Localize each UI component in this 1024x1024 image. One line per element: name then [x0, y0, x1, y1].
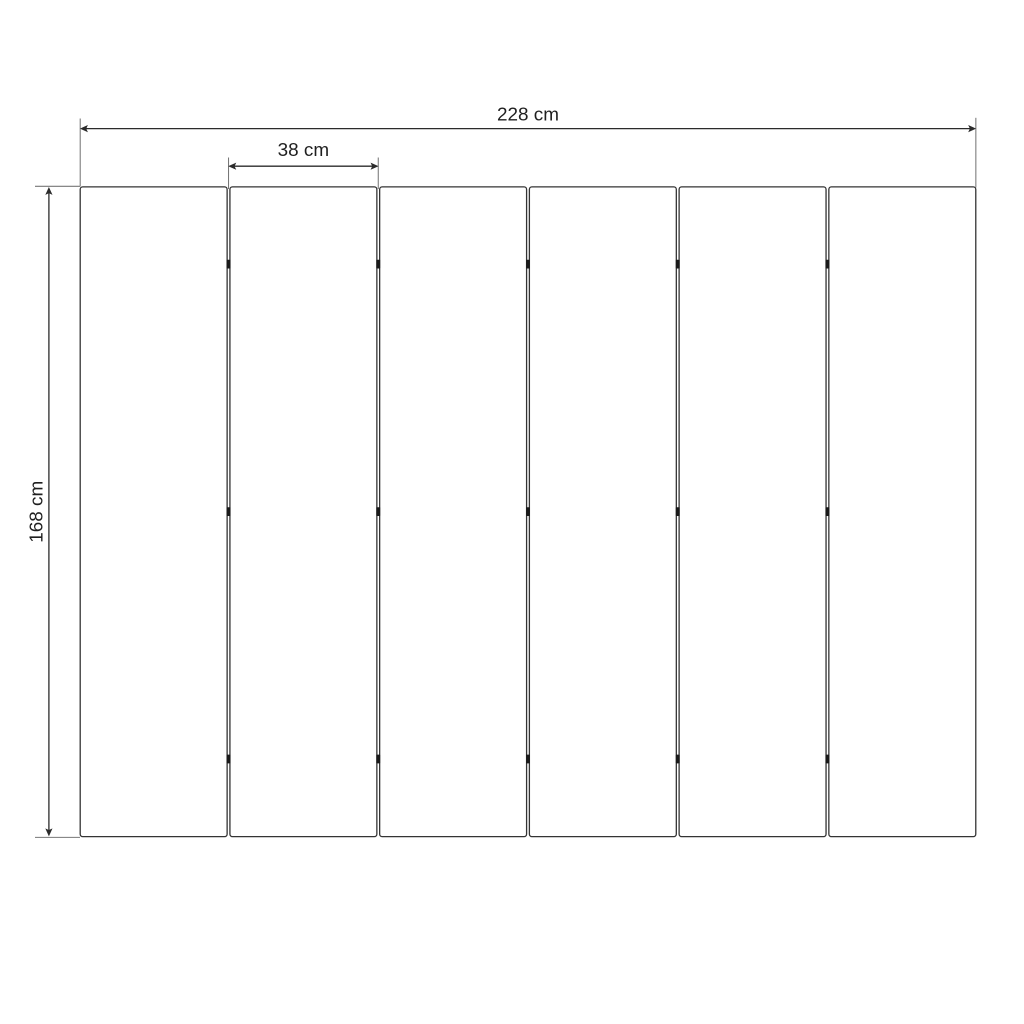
svg-text:228 cm: 228 cm [497, 105, 559, 126]
svg-text:168 cm: 168 cm [26, 481, 47, 543]
svg-text:38 cm: 38 cm [278, 140, 329, 161]
